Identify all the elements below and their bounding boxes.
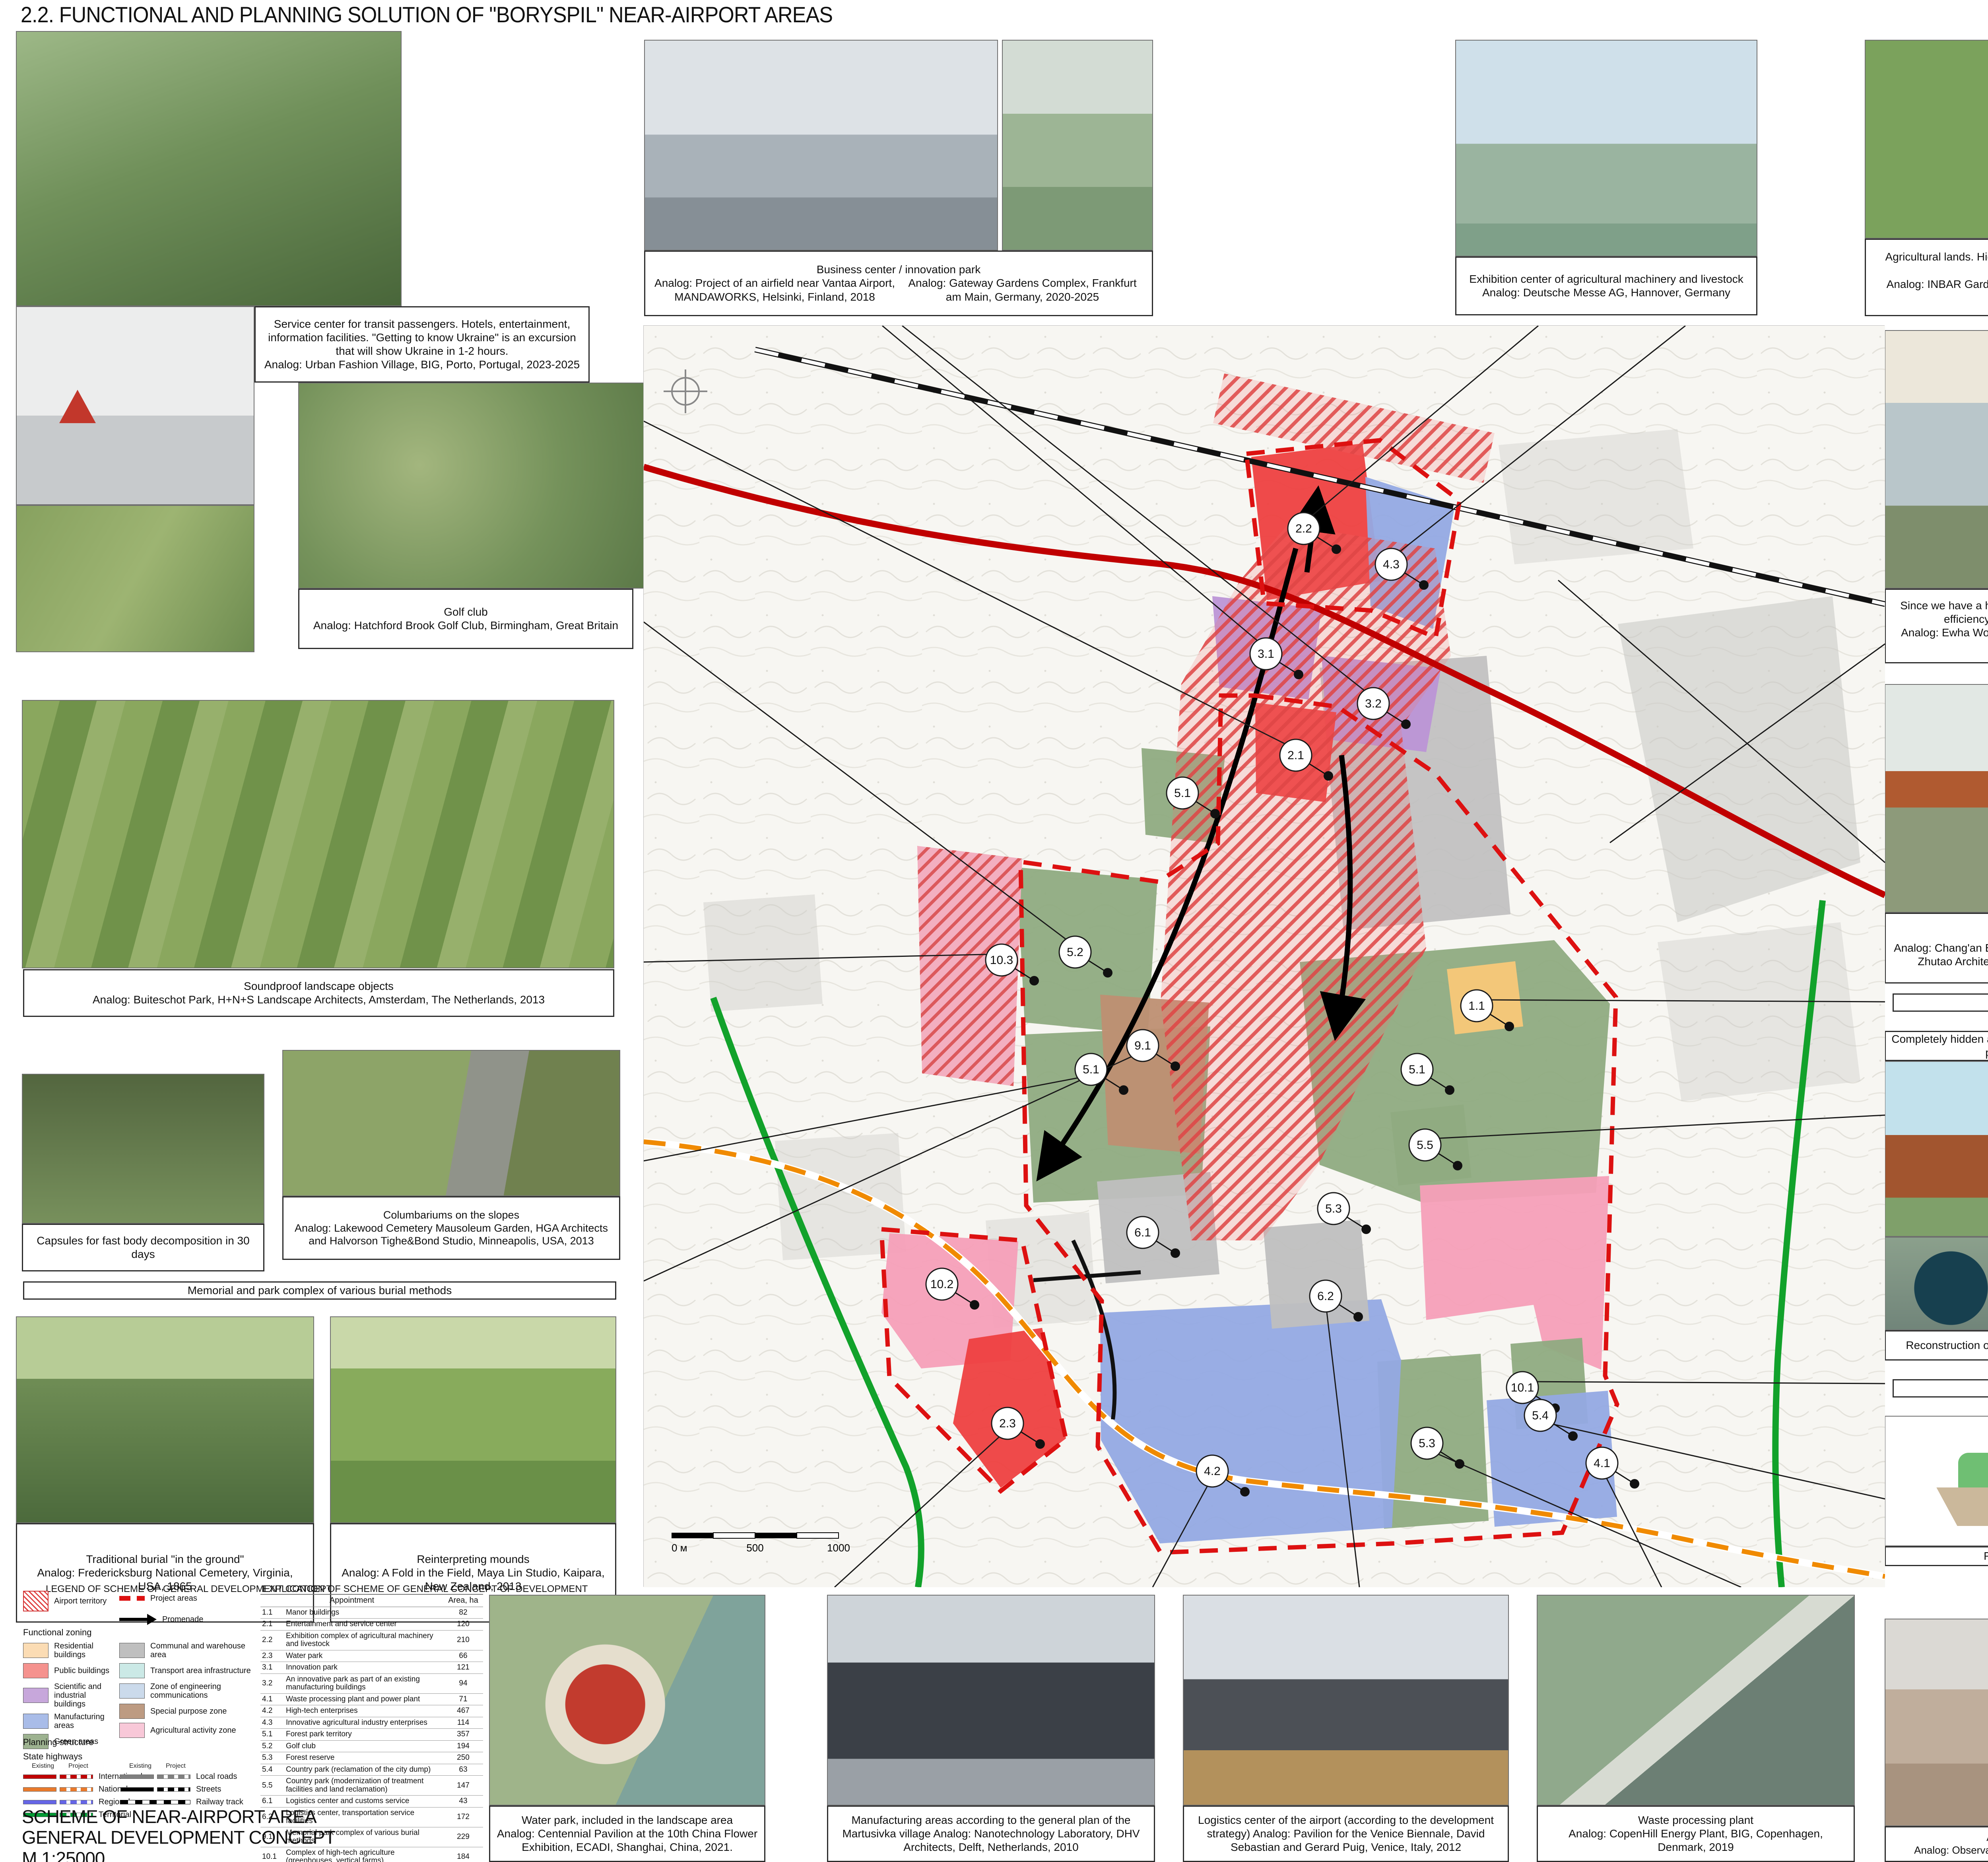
caption-exhibition: Exhibition center of agricultural machin… xyxy=(1455,257,1757,315)
legend-road-item: Regional xyxy=(23,1798,118,1807)
row-name: Complex of high-tech agriculture (greenh… xyxy=(284,1847,443,1862)
caption-service-center: Service center for transit passengers. H… xyxy=(254,306,590,383)
row-name: Waste processing plant and power plant xyxy=(284,1693,443,1705)
row-code: 3.2 xyxy=(260,1673,284,1693)
explication-row: 5.5Country park (modernization of treatm… xyxy=(260,1776,483,1796)
photo-service-center-park xyxy=(16,31,402,306)
zoning-label: Zone of engineering communications xyxy=(150,1682,256,1700)
explication-row: 5.4Country park (reclamation of the city… xyxy=(260,1764,483,1776)
zoning-color-swatch xyxy=(119,1704,145,1719)
explication-row: 1.1Manor buildings82 xyxy=(260,1607,483,1619)
caption-reconstruction: Reconstruction of treatment facilities +… xyxy=(1885,1330,1988,1361)
explication-row: 2.1Entertainment and service center120 xyxy=(260,1619,483,1631)
row-area: 172 xyxy=(443,1807,483,1827)
explication-row: 5.2Golf club194 xyxy=(260,1740,483,1752)
legend-zoning-item: Special purpose zone xyxy=(119,1704,256,1719)
caption-exhibition-title: Exhibition center of agricultural machin… xyxy=(1469,272,1743,286)
caption-service-center-body: Service center for transit passengers. H… xyxy=(261,317,583,358)
svg-text:0 м: 0 м xyxy=(672,1542,687,1554)
row-name: Forest reserve xyxy=(284,1752,443,1764)
legend-state-highways-title: State highways xyxy=(23,1751,82,1762)
explication-row: 2.2Exhibition complex of agricultural ma… xyxy=(260,1630,483,1650)
caption-reconstruction-text: Reconstruction of treatment facilities +… xyxy=(1906,1339,1988,1352)
zone-marker-dot xyxy=(1240,1487,1250,1497)
zoning-label: Transport area infrastructure xyxy=(150,1666,251,1675)
caption-manufacturing-analog: Analog: Nanotechnology Laboratory, DHV A… xyxy=(903,1827,1140,1853)
airport-hatch-swatch xyxy=(23,1591,49,1611)
legend-zoning-item: Transport area infrastructure xyxy=(119,1663,256,1678)
project-areas-swatch xyxy=(119,1596,145,1601)
poster-board: 2.2. FUNCTIONAL AND PLANNING SOLUTION OF… xyxy=(0,0,1988,1862)
zone-number-label: 10.1 xyxy=(1511,1381,1534,1394)
legend-zoning-item: Manufacturing areas xyxy=(23,1712,118,1730)
dump-label-garbage: мусор xyxy=(1885,1476,1988,1485)
road-label: Railway track xyxy=(196,1798,243,1807)
explication-row: 5.1Forest park territory357 xyxy=(260,1729,483,1741)
caption-exhibition-analog: Analog: Deutsche Messe AG, Hannover, Ger… xyxy=(1482,286,1730,299)
legend-planning-structure-title: Planning structure xyxy=(23,1737,93,1747)
zone-marker-dot xyxy=(1353,1312,1363,1322)
zone-number-label: 5.4 xyxy=(1532,1409,1549,1422)
caption-forest: A forest park with viewing platforms Ana… xyxy=(1885,1826,1988,1862)
row-name: Innovative agricultural industry enterpr… xyxy=(284,1717,443,1729)
zoning-color-swatch xyxy=(119,1683,145,1699)
zone-number-label: 2.1 xyxy=(1287,749,1304,762)
caption-columbarium: Columbariums on the slopes Analog: Lakew… xyxy=(282,1196,620,1260)
row-area: 71 xyxy=(443,1693,483,1705)
row-area: 194 xyxy=(443,1740,483,1752)
caption-capsules: Capsules for fast body decomposition in … xyxy=(22,1224,264,1271)
legend-zoning-left: Residential buildingsPublic buildingsSci… xyxy=(23,1642,118,1753)
caption-agri-top-title: Agricultural lands. High-tech agro-indus… xyxy=(1872,250,1988,277)
caption-waste-title: Waste processing plant xyxy=(1638,1813,1753,1827)
photo-fashion-village-courtyard xyxy=(16,306,254,505)
caption-soundproof-title: Soundproof landscape objects xyxy=(244,980,394,993)
photo-forest-tower xyxy=(1885,1619,1988,1826)
zone-marker-dot xyxy=(1455,1459,1464,1469)
roads-existing-header: Existing xyxy=(32,1763,54,1770)
row-code: 2.2 xyxy=(260,1630,284,1650)
caption-columbarium-analog: Analog: Lakewood Cemetery Mausoleum Gard… xyxy=(289,1222,613,1248)
zone-6-2-logistics xyxy=(1263,1220,1369,1329)
caption-water-park-title: Water park, included in the landscape ar… xyxy=(522,1813,733,1827)
explication-row: 3.1Innovation park121 xyxy=(260,1662,483,1674)
road-existing-bar-icon xyxy=(23,1800,56,1804)
row-name: High-tech enterprises xyxy=(284,1705,443,1717)
caption-logistics-analog: Analog: Pavilion for the Venice Biennale… xyxy=(1231,1827,1485,1853)
caption-business-title: Business center / innovation park xyxy=(817,263,980,276)
zoning-color-swatch xyxy=(119,1723,145,1738)
zone-marker-dot xyxy=(1324,771,1333,781)
svg-text:1000: 1000 xyxy=(827,1542,850,1554)
photo-reinterpreting-mounds xyxy=(330,1316,616,1523)
promenade-line-icon xyxy=(119,1618,147,1621)
row-name: Logistics center and customs service xyxy=(284,1796,443,1808)
zoning-label: Manufacturing areas xyxy=(54,1712,118,1730)
zone-marker-dot xyxy=(1210,809,1220,818)
zoning-color-swatch xyxy=(23,1663,49,1678)
row-name: Logistics center, transportation service… xyxy=(284,1807,443,1827)
road-existing-bar-icon xyxy=(120,1775,154,1779)
roads-existing-header-2: Existing xyxy=(129,1763,151,1770)
road-project-bar-icon xyxy=(157,1775,190,1779)
caption-agri-top-analog: Analog: INBAR Garden Pavilion, Cardenas … xyxy=(1872,278,1988,305)
row-code: 4.2 xyxy=(260,1705,284,1717)
row-code: 10.1 xyxy=(260,1847,284,1862)
explication-row: 4.3Innovative agricultural industry ente… xyxy=(260,1717,483,1729)
legend-promenade-label: Promenade xyxy=(162,1615,203,1624)
road-project-bar-icon xyxy=(60,1787,93,1792)
zone-marker-dot xyxy=(1453,1161,1462,1170)
zone-number-label: 4.1 xyxy=(1594,1457,1610,1470)
caption-water-park-analog: Analog: Centennial Pavilion at the 10th … xyxy=(496,1827,759,1854)
explication-row: 9.1Memorial park complex of various buri… xyxy=(260,1827,483,1847)
photo-columbarium xyxy=(282,1050,620,1196)
road-existing-bar-icon xyxy=(23,1787,56,1792)
zone-number-label: 4.3 xyxy=(1383,558,1400,571)
svg-text:500: 500 xyxy=(746,1542,763,1554)
row-code: 5.3 xyxy=(260,1752,284,1764)
zone-number-label: 3.2 xyxy=(1365,697,1382,710)
railway-bar-icon xyxy=(120,1800,190,1804)
zone-number-label: 1.1 xyxy=(1468,999,1485,1013)
zone-marker-dot xyxy=(1035,1439,1045,1449)
legend-zoning-item: Communal and warehouse area xyxy=(119,1642,256,1659)
legend-zoning-item: Zone of engineering communications xyxy=(119,1682,256,1700)
zone-marker-dot xyxy=(1419,580,1429,590)
row-area: 94 xyxy=(443,1673,483,1693)
row-code: 5.2 xyxy=(260,1740,284,1752)
explication-row: 6.1Logistics center and customs service4… xyxy=(260,1796,483,1808)
photo-business-center-street xyxy=(644,40,998,251)
zone-marker-dot xyxy=(1630,1479,1639,1489)
photo-treatment-facilities xyxy=(1885,1237,1988,1330)
zone-number-label: 5.5 xyxy=(1417,1139,1433,1152)
row-area: 467 xyxy=(443,1705,483,1717)
legend-project-areas: Project areas xyxy=(119,1594,250,1603)
road-existing-bar-icon xyxy=(120,1787,154,1792)
caption-reclamation: Reclamation of the garbage dump xyxy=(1885,1546,1988,1566)
col-area: Area, ha xyxy=(443,1594,483,1607)
zoning-color-swatch xyxy=(119,1663,145,1678)
explication-header: EXPLICATION OF SCHEME OF GENERAL CONCEPT… xyxy=(262,1584,588,1595)
caption-service-center-analog: Analog: Urban Fashion Village, BIG, Port… xyxy=(264,358,580,371)
caption-business-center: Business center / innovation park Analog… xyxy=(644,251,1153,316)
zone-number-label: 4.2 xyxy=(1204,1465,1221,1478)
zoning-label: Communal and warehouse area xyxy=(150,1642,256,1659)
legend-airport-label: Airport territory xyxy=(54,1597,107,1605)
explication-row: 6.2Logistics center, transportation serv… xyxy=(260,1807,483,1827)
photo-underground-campus xyxy=(1885,330,1988,589)
row-area: 43 xyxy=(443,1796,483,1808)
zone-marker-dot xyxy=(1171,1061,1180,1071)
explication-header-row: AppointmentArea, ha xyxy=(260,1594,483,1607)
zone-marker-dot xyxy=(1119,1085,1128,1095)
legend-zoning-item: Agricultural activity zone xyxy=(119,1723,256,1738)
row-area: 66 xyxy=(443,1650,483,1662)
zoning-label: Residential buildings xyxy=(54,1642,118,1659)
road-project-bar-icon xyxy=(157,1787,190,1792)
zone-number-label: 2.3 xyxy=(999,1417,1016,1430)
zoning-label: Special purpose zone xyxy=(150,1707,227,1716)
caption-sewage-title-text: Completely hidden and compact sewage tre… xyxy=(1891,1032,1988,1059)
row-code: 1.1 xyxy=(260,1607,284,1619)
caption-soundproof-analog: Analog: Buiteschot Park, H+N+S Landscape… xyxy=(93,993,545,1007)
map-svg: 2.24.33.13.22.15.15.210.31.19.15.15.15.5… xyxy=(644,326,1885,1587)
legend-project-areas-label: Project areas xyxy=(150,1594,197,1603)
row-code: 4.1 xyxy=(260,1693,284,1705)
row-name: Water park xyxy=(284,1650,443,1662)
zone-number-label: 10.2 xyxy=(930,1278,953,1291)
diagram-garbage-dump: растения мусор xyxy=(1885,1416,1988,1546)
zone-number-label: 2.2 xyxy=(1295,522,1312,535)
photo-sewage-plant xyxy=(1885,1061,1988,1237)
legend-roads-right: Local roadsStreetsRailway track xyxy=(120,1772,258,1810)
zoning-color-swatch xyxy=(23,1688,49,1703)
caption-logistics: Logistics center of the airport (accordi… xyxy=(1183,1806,1509,1862)
photo-soundproof-park xyxy=(22,700,614,968)
caption-manufacturing: Manufacturing areas according to the gen… xyxy=(827,1806,1155,1862)
row-area: 147 xyxy=(443,1776,483,1796)
caption-crossings: Crossings over the track Analog: Chang'a… xyxy=(1885,913,1988,983)
explication-table: AppointmentArea, ha1.1Manor buildings822… xyxy=(260,1594,483,1862)
zone-marker-dot xyxy=(1361,1224,1371,1234)
row-name: Memorial park complex of various burial … xyxy=(284,1827,443,1847)
caption-golf: Golf club Analog: Hatchford Brook Golf C… xyxy=(298,589,633,649)
legend-zoning-right: Communal and warehouse areaTransport are… xyxy=(119,1642,256,1742)
caption-traditional-title: Traditional burial "in the ground" xyxy=(86,1553,244,1566)
caption-forest-title: A forest park with viewing platforms xyxy=(1986,1831,1988,1844)
row-name: Country park (modernization of treatment… xyxy=(284,1776,443,1796)
dump-label-plants: растения xyxy=(1885,1434,1988,1444)
photo-exhibition-center xyxy=(1455,40,1757,257)
legend-zoning-item: Public buildings xyxy=(23,1663,118,1678)
road-existing-bar-icon xyxy=(23,1775,56,1779)
row-code: 2.1 xyxy=(260,1619,284,1631)
caption-crossings-analog: Analog: Chang'an Experimental Elementary… xyxy=(1891,941,1988,968)
road-project-bar-icon xyxy=(60,1775,93,1779)
roads-project-header-2: Project xyxy=(166,1763,186,1770)
row-area: 121 xyxy=(443,1662,483,1674)
caption-underground: Since we have a height limit, we can bui… xyxy=(1885,589,1988,663)
dump-base-shape xyxy=(1936,1487,1988,1526)
row-area: 63 xyxy=(443,1764,483,1776)
legend-road-item: Local roads xyxy=(120,1772,258,1781)
row-code: 6.2 xyxy=(260,1807,284,1827)
legend-road-item: International xyxy=(23,1772,118,1781)
zone-marker-dot xyxy=(1103,968,1112,978)
photo-logistics-center xyxy=(1183,1595,1509,1806)
zone-marker-dot xyxy=(1445,1085,1454,1095)
row-area: 82 xyxy=(443,1607,483,1619)
caption-sewage-title: Completely hidden and compact sewage tre… xyxy=(1885,1031,1988,1061)
legend-road-item: Railway track xyxy=(120,1798,258,1807)
caption-reclamation-text: Reclamation of the garbage dump xyxy=(1984,1550,1988,1563)
zone-marker-dot xyxy=(1294,670,1303,679)
caption-soundproof: Soundproof landscape objects Analog: Bui… xyxy=(23,969,614,1017)
zone-number-label: 3.1 xyxy=(1258,647,1274,661)
zoning-color-swatch xyxy=(23,1643,49,1658)
caption-business-analog-right: Analog: Gateway Gardens Complex, Frankfu… xyxy=(899,276,1146,303)
photo-aerial-green-site xyxy=(16,505,254,652)
zone-number-label: 5.3 xyxy=(1325,1202,1342,1215)
legend-airport-territory: Airport territory xyxy=(23,1591,118,1611)
row-area: 229 xyxy=(443,1827,483,1847)
caption-capsules-body: Capsules for fast body decomposition in … xyxy=(29,1234,258,1261)
row-name: Forest park territory xyxy=(284,1729,443,1741)
row-area: 250 xyxy=(443,1752,483,1764)
roads-project-header: Project xyxy=(68,1763,88,1770)
explication-row: 4.2High-tech enterprises467 xyxy=(260,1705,483,1717)
explication-row: 5.3Forest reserve250 xyxy=(260,1752,483,1764)
bar-agricultural-lands: Agricultural lands xyxy=(1893,1379,1988,1397)
legend-road-item: National xyxy=(23,1785,118,1794)
explication-row: 2.3Water park66 xyxy=(260,1650,483,1662)
caption-forest-analog: Analog: Observation tower, EFFEKT, Copen… xyxy=(1914,1844,1988,1857)
bar-memorial-complex-label: Memorial and park complex of various bur… xyxy=(188,1284,452,1297)
zone-number-label: 6.2 xyxy=(1317,1290,1334,1303)
caption-underground-analog: Analog: Ewha Womans University, Dominiqu… xyxy=(1891,626,1988,653)
photo-water-park xyxy=(489,1595,765,1806)
zone-number-label: 5.1 xyxy=(1409,1063,1425,1076)
zone-number-label: 5.3 xyxy=(1419,1437,1435,1450)
photo-golf-club xyxy=(298,383,644,589)
zoning-color-swatch xyxy=(23,1714,49,1729)
photo-agricultural-lands-top xyxy=(1865,40,1988,239)
legend-road-item: Streets xyxy=(120,1785,258,1794)
road-project-bar-icon xyxy=(60,1800,93,1804)
photo-traditional-burial xyxy=(16,1316,314,1523)
caption-waste: Waste processing plant Analog: CopenHill… xyxy=(1537,1806,1855,1862)
zone-number-label: 5.2 xyxy=(1067,946,1083,959)
row-code: 9.1 xyxy=(260,1827,284,1847)
photo-crossings-bridge xyxy=(1885,684,1988,913)
zone-marker-dot xyxy=(1029,976,1039,985)
row-area: 114 xyxy=(443,1717,483,1729)
legend-promenade: Promenade xyxy=(119,1614,250,1625)
zone-marker-dot xyxy=(1568,1431,1578,1441)
caption-mounds-title: Reinterpreting mounds xyxy=(417,1553,529,1566)
photo-manufacturing xyxy=(827,1595,1155,1806)
photo-capsules xyxy=(22,1074,264,1224)
zone-marker-dot xyxy=(1401,719,1411,729)
road-label: Local roads xyxy=(196,1772,237,1781)
zone-number-label: 5.1 xyxy=(1083,1063,1099,1076)
caption-golf-title: Golf club xyxy=(444,605,488,619)
zone-marker-dot xyxy=(1332,544,1341,554)
zone-marker-dot xyxy=(1505,1022,1514,1031)
explication-row: 4.1Waste processing plant and power plan… xyxy=(260,1693,483,1705)
row-name: Country park (reclamation of the city du… xyxy=(284,1764,443,1776)
caption-agri-top: Agricultural lands. High-tech agro-indus… xyxy=(1865,239,1988,316)
row-name: An innovative park as part of an existin… xyxy=(284,1673,443,1693)
row-area: 357 xyxy=(443,1729,483,1741)
row-area: 210 xyxy=(443,1630,483,1650)
zone-number-label: 6.1 xyxy=(1134,1226,1151,1239)
row-name: Exhibition complex of agricultural machi… xyxy=(284,1630,443,1650)
row-area: 184 xyxy=(443,1847,483,1862)
zoning-label: Agricultural activity zone xyxy=(150,1726,236,1735)
caption-golf-analog: Analog: Hatchford Brook Golf Club, Birmi… xyxy=(313,619,618,632)
photo-waste-plant xyxy=(1537,1595,1855,1806)
promenade-arrow-icon xyxy=(147,1614,157,1625)
red-sculpture-accent xyxy=(59,390,96,423)
bar-memorial-complex: Memorial and park complex of various bur… xyxy=(23,1281,616,1300)
legend-zoning-item: Residential buildings xyxy=(23,1642,118,1659)
photo-airfield-aerial xyxy=(1002,40,1153,251)
zone-marker-dot xyxy=(1171,1248,1180,1258)
zoning-color-swatch xyxy=(119,1643,145,1658)
bar-manor-buildings: Manor buildings xyxy=(1893,993,1988,1012)
row-name: Innovation park xyxy=(284,1662,443,1674)
legend-functional-zoning-title: Functional zoning xyxy=(23,1627,91,1638)
caption-business-analog-left: Analog: Project of an airfield near Vant… xyxy=(651,276,899,303)
zone-4-2-hightech xyxy=(1100,1299,1401,1543)
zone-number-label: 10.3 xyxy=(990,954,1013,967)
row-code: 5.5 xyxy=(260,1776,284,1796)
caption-underground-body: Since we have a height limit, we can bui… xyxy=(1891,599,1988,626)
caption-water-park: Water park, included in the landscape ar… xyxy=(489,1806,765,1862)
col-appointment: Appointment xyxy=(260,1594,443,1607)
map-general-development-concept: 2.24.33.13.22.15.15.210.31.19.15.15.15.5… xyxy=(643,325,1885,1587)
row-code: 5.4 xyxy=(260,1764,284,1776)
zone-number-label: 5.1 xyxy=(1174,787,1191,800)
row-code: 6.1 xyxy=(260,1796,284,1808)
row-name: Entertainment and service center xyxy=(284,1619,443,1631)
zone-number-label: 9.1 xyxy=(1134,1039,1151,1052)
caption-waste-analog: Analog: CopenHill Energy Plant, BIG, Cop… xyxy=(1543,1827,1848,1854)
row-area: 120 xyxy=(443,1619,483,1631)
zoning-label: Public buildings xyxy=(54,1666,109,1675)
row-code: 2.3 xyxy=(260,1650,284,1662)
explication-row: 3.2An innovative park as part of an exis… xyxy=(260,1673,483,1693)
road-label: Streets xyxy=(196,1785,221,1794)
row-code: 5.1 xyxy=(260,1729,284,1741)
row-code: 3.1 xyxy=(260,1662,284,1674)
row-name: Manor buildings xyxy=(284,1607,443,1619)
row-code: 4.3 xyxy=(260,1717,284,1729)
legend-zoning-item: Scientific and industrial buildings xyxy=(23,1682,118,1708)
zone-marker-dot xyxy=(970,1300,979,1310)
caption-columbarium-title: Columbariums on the slopes xyxy=(383,1209,519,1222)
row-name: Golf club xyxy=(284,1740,443,1752)
zoning-label: Scientific and industrial buildings xyxy=(54,1682,118,1708)
explication-row: 10.1Complex of high-tech agriculture (gr… xyxy=(260,1847,483,1862)
page-title: 2.2. FUNCTIONAL AND PLANNING SOLUTION OF… xyxy=(21,2,833,27)
